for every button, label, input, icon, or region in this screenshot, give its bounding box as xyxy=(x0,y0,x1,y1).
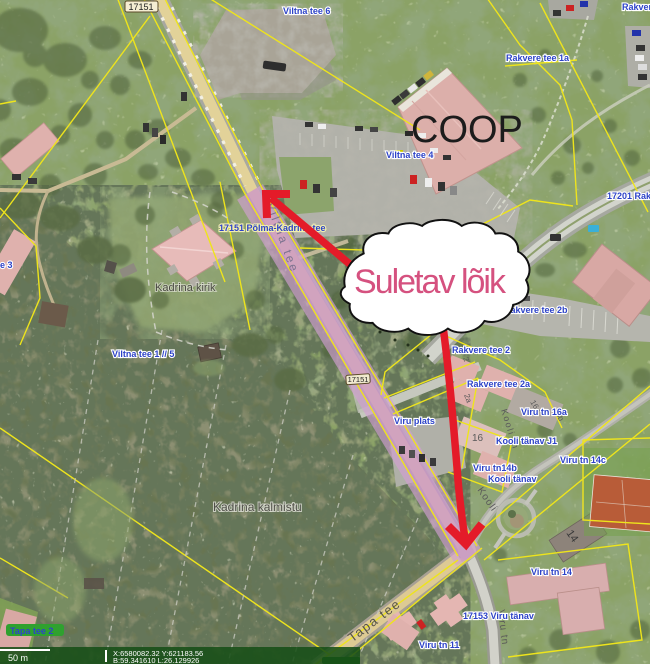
svg-text:16: 16 xyxy=(472,433,484,444)
svg-text:tee 3: tee 3 xyxy=(0,260,13,270)
svg-text:Viltna tee 6: Viltna tee 6 xyxy=(283,6,330,16)
svg-text:17201 Rakvere tee: 17201 Rakvere tee xyxy=(607,191,650,201)
svg-text:17153 Viru tänav: 17153 Viru tänav xyxy=(463,611,534,621)
svg-text:Rakvere tee 2: Rakvere tee 2 xyxy=(452,345,510,355)
svg-text:Rakvere tee 1a: Rakvere tee 1a xyxy=(506,53,570,63)
svg-text:Kadrina kirik: Kadrina kirik xyxy=(155,282,216,294)
svg-text:Tapa tee 2: Tapa tee 2 xyxy=(10,626,53,636)
svg-text:Viru tn 14: Viru tn 14 xyxy=(531,567,572,577)
svg-text:B:59.341610 L:26.129926: B:59.341610 L:26.129926 xyxy=(113,656,199,664)
svg-text:50 m: 50 m xyxy=(8,653,28,663)
svg-text:17151: 17151 xyxy=(348,375,369,384)
svg-text:Suletav lõik: Suletav lõik xyxy=(354,263,507,301)
svg-text:Viru tn 16a: Viru tn 16a xyxy=(521,407,568,417)
svg-text:Viltna tee 1 // 5: Viltna tee 1 // 5 xyxy=(112,349,174,359)
svg-text:Viltna tee 4: Viltna tee 4 xyxy=(386,150,433,160)
svg-text:COOP: COOP xyxy=(411,109,523,151)
svg-text:Viru tn 14c: Viru tn 14c xyxy=(560,455,606,465)
svg-text:Rakvere tee 2a: Rakvere tee 2a xyxy=(467,379,531,389)
svg-text:Viru tn14b: Viru tn14b xyxy=(473,463,517,473)
svg-text:Kadrina kalmistu: Kadrina kalmistu xyxy=(213,500,302,514)
svg-text:Kooli tänav: Kooli tänav xyxy=(488,474,537,484)
svg-text:Viru tn 11: Viru tn 11 xyxy=(419,640,459,650)
svg-text:Kooli tänav J1: Kooli tänav J1 xyxy=(496,436,557,446)
svg-text:Rakvere: Rakvere xyxy=(622,2,650,12)
svg-text:17151: 17151 xyxy=(128,2,153,12)
svg-text:Viru plats: Viru plats xyxy=(394,416,435,426)
